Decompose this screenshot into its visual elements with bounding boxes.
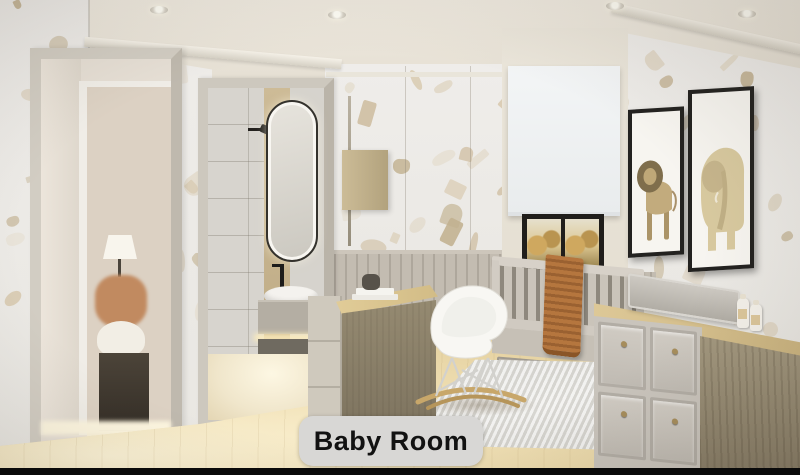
baby-room-photo: Baby Room <box>0 0 800 475</box>
dresser-drawer <box>598 321 646 390</box>
baby-lotion-bottle <box>737 298 749 328</box>
wallpaper-blob <box>459 146 475 163</box>
wallpaper-blob <box>5 215 20 229</box>
recessed-light <box>150 6 168 14</box>
dresser-side-panel <box>700 336 800 475</box>
wallpaper-blob <box>439 202 465 229</box>
dresser-front <box>594 316 702 475</box>
elephant-illustration <box>694 135 748 268</box>
drawer-knob <box>672 348 678 355</box>
faucet <box>280 264 284 288</box>
drawer-knob <box>621 411 627 418</box>
side-cabinet <box>308 296 342 432</box>
bedroom-doorway <box>79 81 171 435</box>
bottle-label <box>751 315 760 325</box>
bottle-label <box>738 309 747 319</box>
bottle-cap <box>753 300 759 305</box>
caption-text: Baby Room <box>314 426 469 457</box>
wallpaper-blob <box>439 217 464 247</box>
white-pouf <box>97 321 145 357</box>
wallpaper-blob <box>765 191 785 213</box>
recessed-light <box>606 2 624 10</box>
wallpaper-blob <box>430 147 457 168</box>
wall-seam <box>405 66 406 276</box>
wallpaper-blob <box>642 50 666 74</box>
crown-molding <box>326 72 516 77</box>
wallpaper-blob <box>658 74 676 91</box>
wall-art-group <box>620 86 762 289</box>
lion-illustration <box>634 131 678 254</box>
wallpaper-blob <box>433 79 455 96</box>
recessed-light <box>738 10 756 18</box>
dresser-drawer <box>650 327 697 396</box>
bottle-cap <box>740 294 746 299</box>
wallpaper-blob <box>780 230 795 244</box>
rust-blanket <box>542 254 583 358</box>
lion-artwork <box>628 106 684 257</box>
dresser-drawer <box>650 397 697 466</box>
wallpaper-blob <box>4 231 26 249</box>
bed-glimpse <box>95 275 147 327</box>
wallpaper-blob <box>444 178 468 200</box>
roller-shade <box>508 66 620 216</box>
caption-pill: Baby Room <box>299 416 483 466</box>
wood-wall-panel <box>342 150 388 210</box>
eames-rocker-illustration <box>408 274 532 414</box>
wall-seam <box>470 66 471 276</box>
wallpaper-blob <box>406 214 428 236</box>
wallpaper-blob <box>12 0 22 10</box>
wallpaper-blob <box>357 100 377 128</box>
wallpaper-blob <box>342 81 356 95</box>
baby-lotion-bottle <box>750 304 762 331</box>
dresser-drawer <box>598 391 646 460</box>
elephant-artwork <box>688 86 754 272</box>
drawer-knob <box>672 418 678 425</box>
drawer-knob <box>621 341 627 348</box>
pill-mirror <box>266 100 318 262</box>
wallpaper-blob <box>389 232 400 244</box>
desk-decor-object <box>362 274 380 290</box>
hallway-wall <box>41 59 81 435</box>
recessed-light <box>328 11 346 19</box>
hall-doorway <box>30 48 182 446</box>
window-unit <box>502 28 628 290</box>
wallpaper-blob <box>393 158 411 174</box>
rocking-chair <box>408 274 532 414</box>
lamp-shade <box>103 235 137 259</box>
bottom-black-bar <box>0 468 800 475</box>
